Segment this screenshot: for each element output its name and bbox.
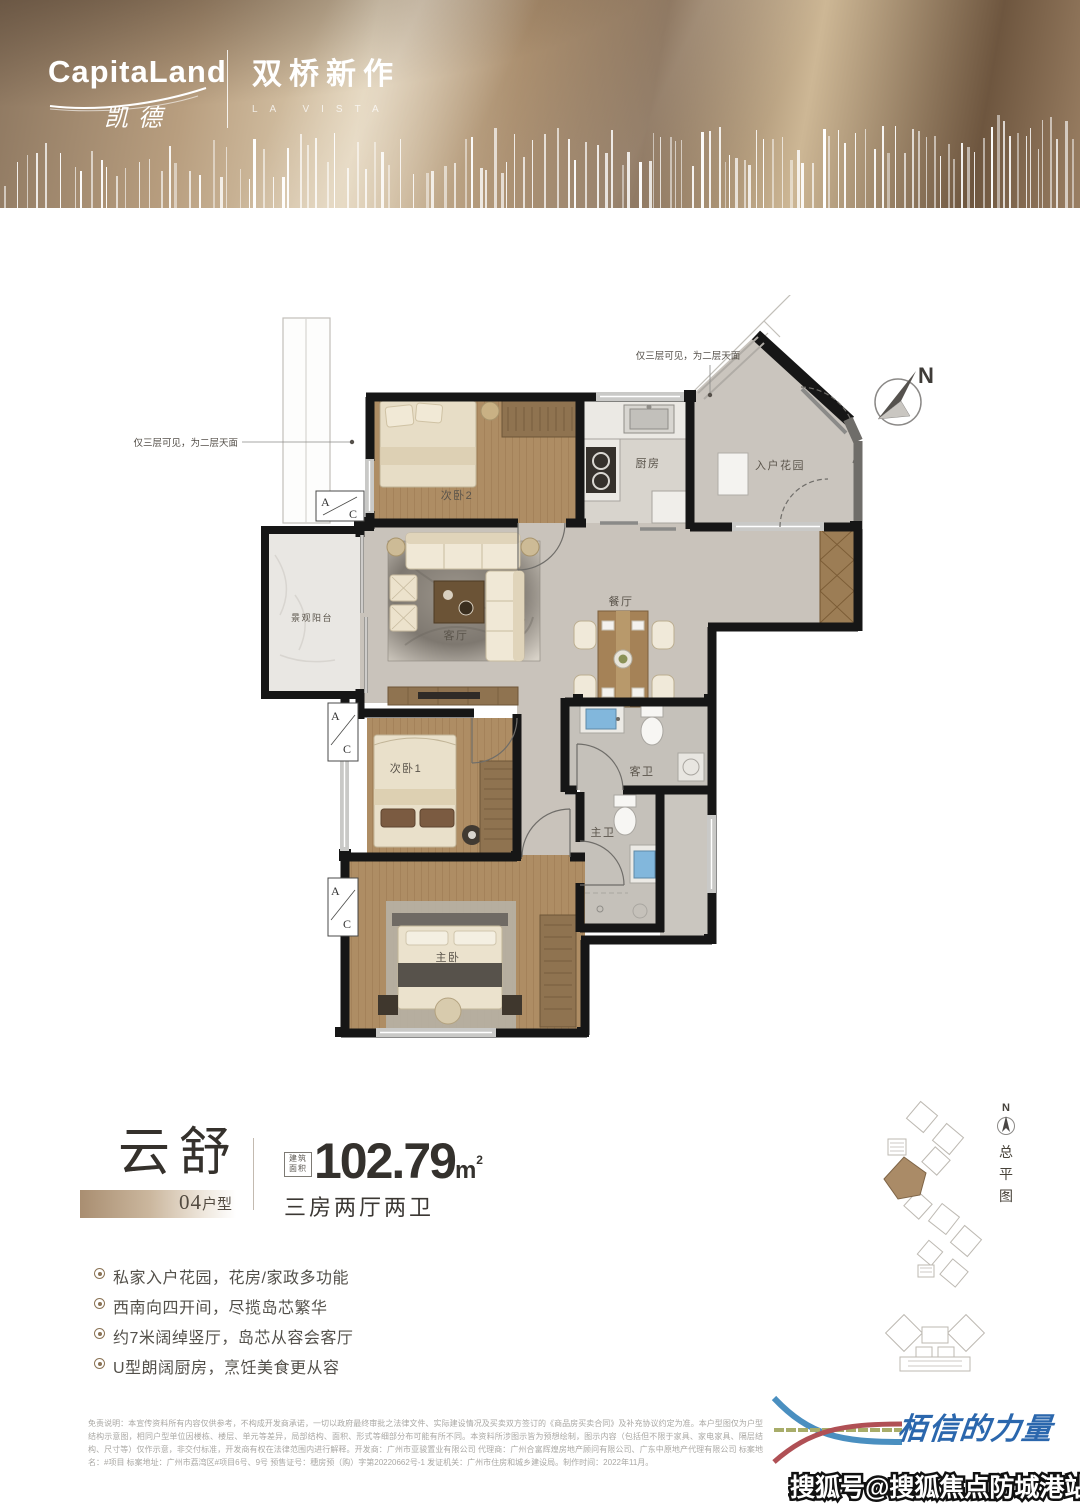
siteplan-building-cluster2 xyxy=(886,1315,985,1371)
compass-north-label: N xyxy=(918,363,934,388)
rooms-description: 三房两厅两卫 xyxy=(284,1190,434,1222)
floorplan-drawing: A C A C A C 次卧2 厨房 入户花园 景观阳台 客厅 餐厅 xyxy=(40,295,940,1050)
coffee-table xyxy=(434,581,484,623)
unit-info-divider xyxy=(253,1138,254,1210)
ac-letter-c: C xyxy=(343,742,351,756)
project-logo: 双桥新作 LA VISTA xyxy=(252,60,400,115)
ac-letter-c: C xyxy=(343,917,351,931)
master-sink xyxy=(634,851,655,878)
unit-name: 云舒 xyxy=(118,1128,240,1180)
unit-type-number: 04 xyxy=(179,1190,202,1214)
power-logo-text: 栢信的力量 xyxy=(896,1404,1056,1448)
label-dining: 餐厅 xyxy=(609,594,634,608)
label-kitchen: 厨房 xyxy=(636,457,661,470)
feature-text: 约7米阔绰竖厅，岛芯从容会客厅 xyxy=(113,1324,353,1348)
unit-type-bar: 04户型 xyxy=(80,1190,236,1218)
tv-cabinet xyxy=(388,687,518,705)
area-value: 102.79m2 xyxy=(314,1136,483,1186)
bullet-icon xyxy=(94,1268,105,1279)
project-name: 双桥新作 xyxy=(252,60,400,90)
label-balcony: 景观阳台 xyxy=(291,612,333,623)
area-number: 102.79 xyxy=(314,1133,455,1189)
barcode-strip xyxy=(0,113,1080,208)
siteplan: N 总 平 图 xyxy=(860,1095,1080,1400)
siteplan-label-char2: 平 xyxy=(999,1166,1013,1182)
label-master-bedroom: 主卧 xyxy=(436,951,461,964)
disclaimer-text: 免责说明：本宣传资料所有内容仅供参考，不构成开发商承诺，一切以政府最终审批之法律… xyxy=(88,1417,763,1469)
entry-garden-floor xyxy=(690,335,858,527)
floorplan: A C A C A C 次卧2 厨房 入户花园 景观阳台 客厅 餐厅 xyxy=(40,295,940,1055)
siteplan-label: 总 平 图 xyxy=(999,1144,1013,1204)
compass: N xyxy=(875,363,934,425)
bullet-icon xyxy=(94,1358,105,1369)
ac-letter-a: A xyxy=(321,495,330,509)
roof-note-top: 仅三层可见，为二层天面 xyxy=(636,350,741,362)
siteplan-compass: N xyxy=(998,1102,1015,1135)
power-logo: 栢信的力量 xyxy=(770,1392,1070,1464)
wardrobe1 xyxy=(480,761,518,853)
watermark-text: 搜狐号@搜狐焦点防城港站 xyxy=(790,1473,1080,1502)
utility-floor xyxy=(660,790,712,940)
label-entry-garden: 入户花园 xyxy=(755,458,805,472)
siteplan-drawing: N 总 平 图 xyxy=(860,1095,1080,1395)
ac-unit-3: A C xyxy=(328,878,358,936)
feature-text: U型朗阔厨房，烹饪美食更从容 xyxy=(113,1354,340,1378)
ac-letter-c: C xyxy=(349,507,357,521)
watermark: 搜狐号@搜狐焦点防城港站 xyxy=(788,1462,1080,1508)
siteplan-north-label: N xyxy=(1002,1102,1010,1114)
label-living: 客厅 xyxy=(444,628,469,642)
fridge xyxy=(652,491,686,523)
ac-letter-a: A xyxy=(331,884,340,898)
header-banner: CapitaLand 凯德 双桥新作 LA VISTA xyxy=(0,0,1080,208)
ac-unit-1: A C xyxy=(316,491,364,521)
bullet-icon xyxy=(94,1328,105,1339)
feature-text: 西南向四开间，尽揽岛芯繁华 xyxy=(113,1294,328,1318)
guest-toilet xyxy=(641,717,663,745)
hallway-floor xyxy=(517,703,565,795)
bullet-icon xyxy=(94,1298,105,1309)
master-toilet xyxy=(614,807,636,835)
guest-sink xyxy=(586,709,616,729)
siteplan-label-char1: 总 xyxy=(999,1144,1013,1160)
area-unit-m: m xyxy=(455,1157,476,1184)
ac-letter-a: A xyxy=(331,709,340,723)
label-bedroom2: 次卧2 xyxy=(441,488,474,502)
label-bedroom1: 次卧1 xyxy=(390,761,423,775)
label-master-bath: 主卫 xyxy=(591,826,616,839)
brand-logo: CapitaLand 凯德 xyxy=(48,56,227,87)
unit-type: 04户型 xyxy=(179,1190,232,1215)
corridor-cabinet xyxy=(820,529,854,623)
power-logo-swoosh-icon xyxy=(770,1392,905,1464)
wardrobe2 xyxy=(502,401,580,437)
poster-page: CapitaLand 凯德 双桥新作 LA VISTA xyxy=(0,0,1080,1509)
roof-note-left: 仅三层可见，为二层天面 xyxy=(133,437,238,449)
brand-wordmark: CapitaLand xyxy=(48,56,227,87)
garden-cabinet xyxy=(718,453,748,495)
label-guest-bath: 客卫 xyxy=(630,764,655,778)
area-badge: 建筑 面积 xyxy=(284,1152,312,1177)
master-bed xyxy=(378,901,522,1031)
area-unit-sup: 2 xyxy=(476,1153,483,1167)
area-badge-line1: 建筑 xyxy=(285,1154,311,1164)
ac-unit-2: A C xyxy=(328,703,358,761)
siteplan-label-char3: 图 xyxy=(999,1188,1013,1204)
feature-text: 私家入户花园，花房/家政多功能 xyxy=(113,1264,349,1288)
master-wardrobe xyxy=(540,915,576,1027)
unit-type-suffix: 户型 xyxy=(202,1197,232,1213)
area-badge-line2: 面积 xyxy=(285,1164,311,1174)
area-unit: m2 xyxy=(455,1157,483,1184)
siteplan-highlighted-unit xyxy=(884,1157,926,1199)
